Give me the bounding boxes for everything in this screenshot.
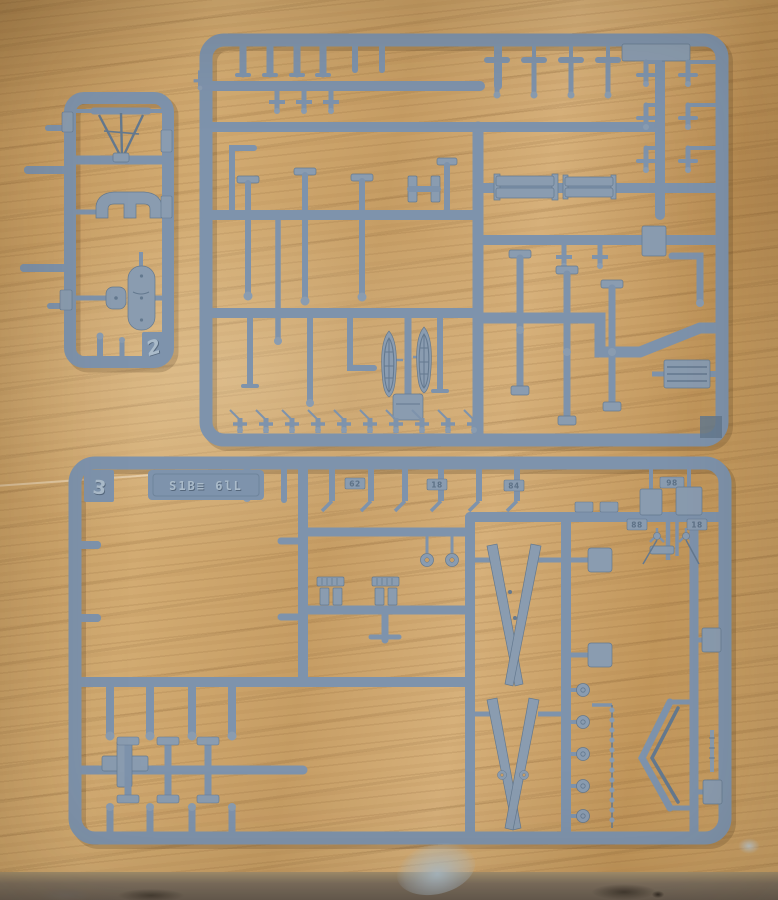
- deck-gun: [334, 410, 351, 433]
- edge-speck: [652, 891, 664, 898]
- lattice-brace-upper: [470, 544, 566, 686]
- bench-part: [372, 577, 399, 605]
- deck-gun: [438, 410, 455, 433]
- edge-stain-dark: [592, 884, 656, 900]
- photo-model-kit-sprues: 2 2: [0, 0, 778, 900]
- tag-88: 88: [631, 521, 642, 530]
- boat-part-left: [382, 331, 397, 397]
- t-peg: [638, 62, 654, 87]
- deck-gun: [360, 410, 377, 433]
- lattice-brace-lower: [470, 698, 566, 830]
- bridge-deck-part: [70, 192, 168, 218]
- tripod-mast-part: [70, 111, 168, 162]
- sprue-top: [194, 35, 728, 446]
- propeller-part: [650, 528, 664, 542]
- t-peg: [638, 148, 654, 173]
- tag-84: 84: [508, 482, 519, 491]
- t-peg: [680, 62, 696, 87]
- washer: [446, 554, 459, 567]
- sprue-left: 2 2: [20, 98, 172, 362]
- tag-98: 98: [666, 479, 677, 488]
- ships-boats-assembly: [382, 318, 432, 420]
- t-peg: [323, 89, 339, 114]
- sprues-drawing: 2 2: [0, 0, 778, 900]
- t-peg: [296, 89, 312, 114]
- oval-plate-part: [70, 252, 168, 330]
- t-peg: [592, 244, 608, 269]
- tag-18: 18: [431, 481, 442, 490]
- block-part: [642, 226, 666, 256]
- right-tpeg-pairs: [638, 62, 722, 173]
- davit-chevron-part: [642, 702, 694, 808]
- t-peg: [680, 105, 696, 130]
- corner-tag-3: 3 3: [84, 470, 114, 502]
- corner-tag-2: 2 2: [142, 332, 168, 361]
- paint-smudge-blue-small: [738, 838, 760, 854]
- t-peg: [680, 148, 696, 173]
- plate-embossed-text: S1B≡ 6lL: [169, 479, 243, 493]
- sprue-bottom: 3 3 S1B≡ 6lL S1B≡ 6lL 62 18: [75, 463, 730, 843]
- deck-gun: [282, 410, 299, 433]
- block-parts-mid: [566, 548, 612, 667]
- washer: [497, 770, 506, 779]
- anchor-chain-strip: [592, 705, 615, 828]
- t-peg: [556, 244, 572, 269]
- deck-gun-row: [230, 410, 481, 433]
- tag-18b: 18: [691, 521, 702, 530]
- t-peg: [269, 89, 285, 114]
- washer-parts: [421, 536, 459, 567]
- tag-62: 62: [349, 480, 360, 489]
- corner-gusset: [700, 416, 722, 438]
- long-plate-part: [622, 44, 690, 61]
- label-plate: S1B≡ 6lL S1B≡ 6lL: [148, 470, 264, 500]
- hanging-peg-row: [106, 682, 237, 741]
- washer: [519, 770, 528, 779]
- washer: [421, 554, 434, 567]
- edge-stain-gray: [40, 888, 92, 900]
- bench-part: [317, 577, 344, 605]
- vent-grate-part: [652, 360, 722, 388]
- edge-stain-dark2: [118, 889, 184, 900]
- deck-gun: [308, 410, 325, 433]
- deck-gun: [256, 410, 273, 433]
- boat-part-right: [417, 327, 432, 393]
- deck-gun: [230, 410, 247, 433]
